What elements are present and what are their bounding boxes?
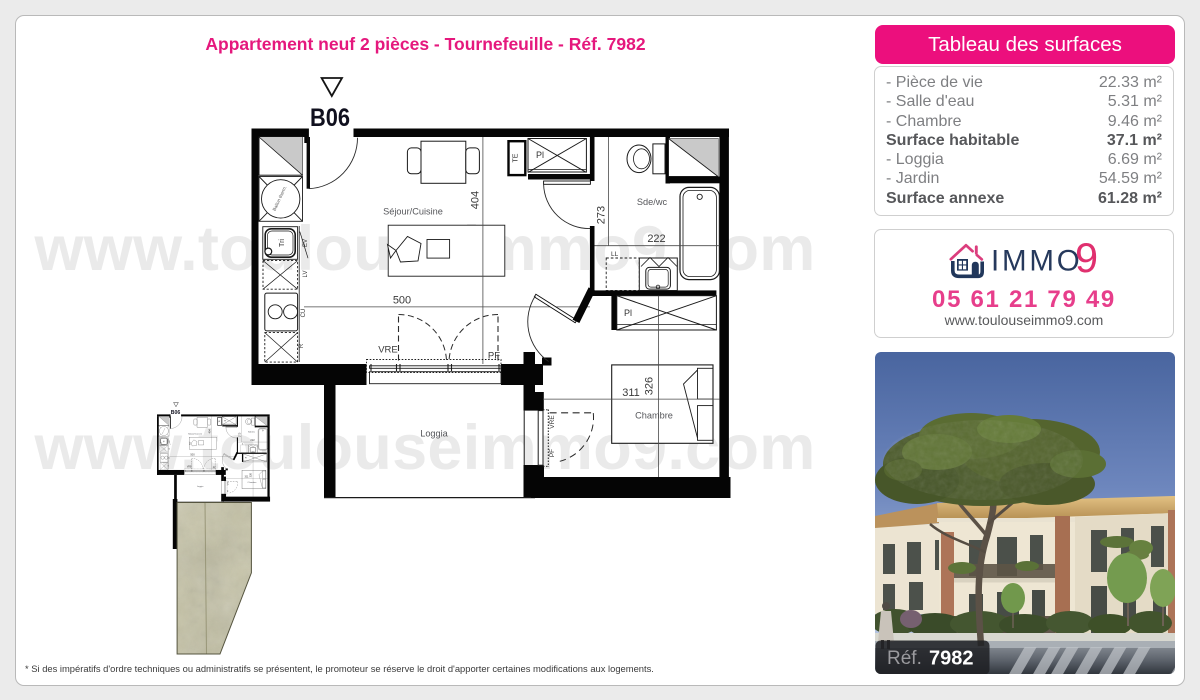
svg-text:CU: CU — [301, 309, 307, 318]
svg-text:404: 404 — [470, 191, 482, 209]
svg-text:Tri: Tri — [279, 239, 286, 247]
svg-text:Réf.: Réf. — [887, 648, 922, 669]
svg-text:311: 311 — [622, 387, 640, 399]
svg-text:Loggia: Loggia — [420, 429, 448, 439]
svg-text:LL: LL — [611, 251, 619, 258]
svg-text:Pl: Pl — [624, 308, 632, 318]
svg-text:PF: PF — [488, 351, 500, 362]
svg-text:Pl: Pl — [536, 150, 544, 160]
svg-text:Séjour/Cuisine: Séjour/Cuisine — [383, 207, 443, 217]
svg-text:9: 9 — [1075, 236, 1098, 280]
svg-text:PF: PF — [549, 449, 556, 457]
svg-text:222: 222 — [647, 233, 665, 245]
svg-text:500: 500 — [393, 295, 411, 307]
svg-text:Sde/wc: Sde/wc — [637, 197, 668, 207]
svg-text:TE: TE — [513, 153, 520, 162]
svg-text:7982: 7982 — [929, 648, 974, 670]
svg-text:LV: LV — [303, 271, 309, 278]
svg-text:R: R — [299, 343, 305, 348]
svg-text:273: 273 — [596, 206, 608, 224]
svg-text:IMMO: IMMO — [991, 245, 1083, 278]
svg-text:Chambre: Chambre — [635, 411, 673, 421]
svg-text:VRE: VRE — [378, 345, 398, 356]
svg-text:326: 326 — [644, 377, 656, 395]
svg-text:VRE: VRE — [549, 415, 556, 429]
svg-text:B06: B06 — [310, 104, 350, 132]
